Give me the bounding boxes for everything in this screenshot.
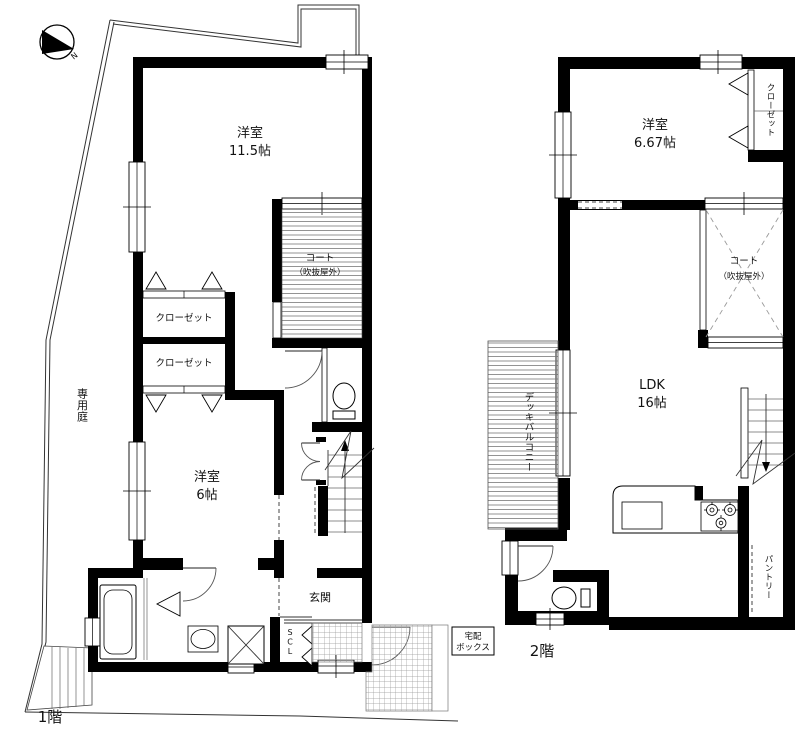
window-icon [123,162,151,252]
stairs-up-arrow-icon [341,440,349,533]
window-icon [700,50,742,74]
door-arc [518,546,553,581]
wall-opening [578,201,622,209]
toilet-icon [552,587,590,609]
deck-balcony: デッキバルコニー [488,341,558,529]
washbasin-icon [188,626,218,652]
floorplan-page: N [0,0,800,733]
delivery-box: 宅配 ボックス [452,627,494,655]
delivery-box-label-1: 宅配 [464,631,482,642]
bedroom115-name: 洋室 [237,125,263,141]
door-arc [285,351,322,388]
court-1f-note: （吹抜屋外） [294,267,345,278]
window-icon [708,337,783,348]
entrance-label: 玄関 [309,590,331,604]
bath-folding-door-icon [157,592,180,616]
court-2f-label: コート [730,256,759,267]
court-2f-note: （吹抜屋外） [718,271,769,282]
porch-tiles [366,625,432,711]
stairs-down-arrow-icon [762,394,770,472]
closet-upper-label: クローゼット [155,312,212,324]
pantry-2f: パントリー [752,545,773,615]
kitchen-2f [613,486,738,533]
toilet-icon [333,383,355,419]
double-door-arc [302,443,321,480]
court-1f-label: コート [306,253,335,264]
deck-balcony-label: デッキバルコニー [523,391,535,472]
north-label: N [69,51,79,62]
bathroom-1f [100,578,180,660]
window-icon [705,192,783,215]
ldk-size: 16帖 [637,396,667,411]
closet-2f: クローゼット [729,70,783,150]
bedroom667-name: 洋室 [642,117,668,133]
closet-2f-label: クローゼット [765,83,775,137]
bedroom6-name: 洋室 [194,469,220,485]
compass-icon: N [40,25,80,61]
scl-1f: SCL [280,617,312,667]
exterior-steps [27,646,92,710]
kitchen-sink-icon [622,502,662,529]
window-icon [326,50,368,74]
scl-label: SCL [286,628,295,657]
washing-machine-icon [228,626,264,664]
court-1f: コート （吹抜屋外） [273,209,362,338]
door-arc [183,568,216,601]
window-icon [123,442,151,540]
window-icon [85,618,100,646]
court-2f: コート （吹抜屋外） [700,210,783,337]
pantry-label: パントリー [763,555,773,600]
delivery-box-label-2: ボックス [456,643,490,653]
window-icon [502,541,518,575]
garden-label: 専用庭 [76,387,89,422]
floor2-label: 2階 [530,642,555,660]
bedroom667-size: 6.67帖 [634,136,676,151]
ldk-name: LDK [639,378,665,393]
washroom-1f [183,495,279,664]
stove-icon [701,502,738,531]
bedroom115-size: 11.5帖 [229,144,271,159]
floor1-label: 1階 [38,708,63,726]
closet-lower-label: クローゼット [155,357,212,369]
toilet-1f [285,348,355,422]
window-icon [549,112,577,198]
bathtub-icon [100,585,136,659]
bedroom6-size: 6帖 [196,488,217,503]
porch-step [432,625,448,711]
floorplan-image: N [0,0,800,733]
